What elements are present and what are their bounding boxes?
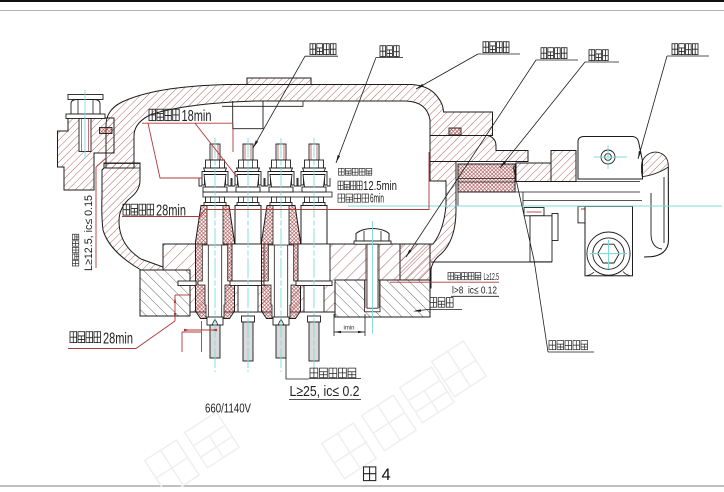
svg-text:28min: 28min <box>103 331 133 348</box>
svg-text:L≥12.5, ic≤ 0.15: L≥12.5, ic≤ 0.15 <box>83 195 95 271</box>
svg-text:18min: 18min <box>182 108 212 125</box>
svg-text:4: 4 <box>382 466 391 484</box>
svg-text:L≥25, ic≤ 0.2: L≥25, ic≤ 0.2 <box>290 384 360 400</box>
svg-text:l>8 ic≤ 0.12: l>8 ic≤ 0.12 <box>452 284 497 296</box>
svg-text:L≥12.5: L≥12.5 <box>484 272 500 283</box>
svg-text:660/1140V: 660/1140V <box>205 402 252 416</box>
svg-text:6min: 6min <box>370 191 384 205</box>
svg-text:imin: imin <box>344 325 355 332</box>
